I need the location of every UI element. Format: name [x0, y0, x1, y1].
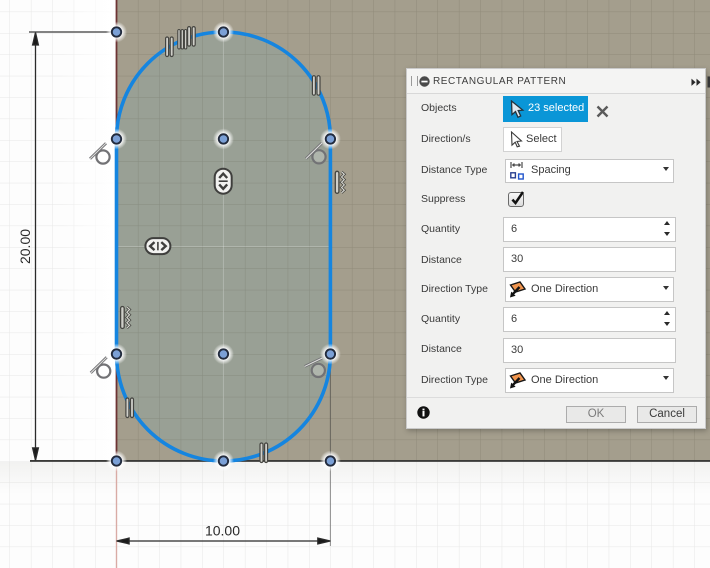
svg-text:20.00: 20.00	[17, 229, 33, 264]
svg-text:10.00: 10.00	[205, 523, 240, 539]
